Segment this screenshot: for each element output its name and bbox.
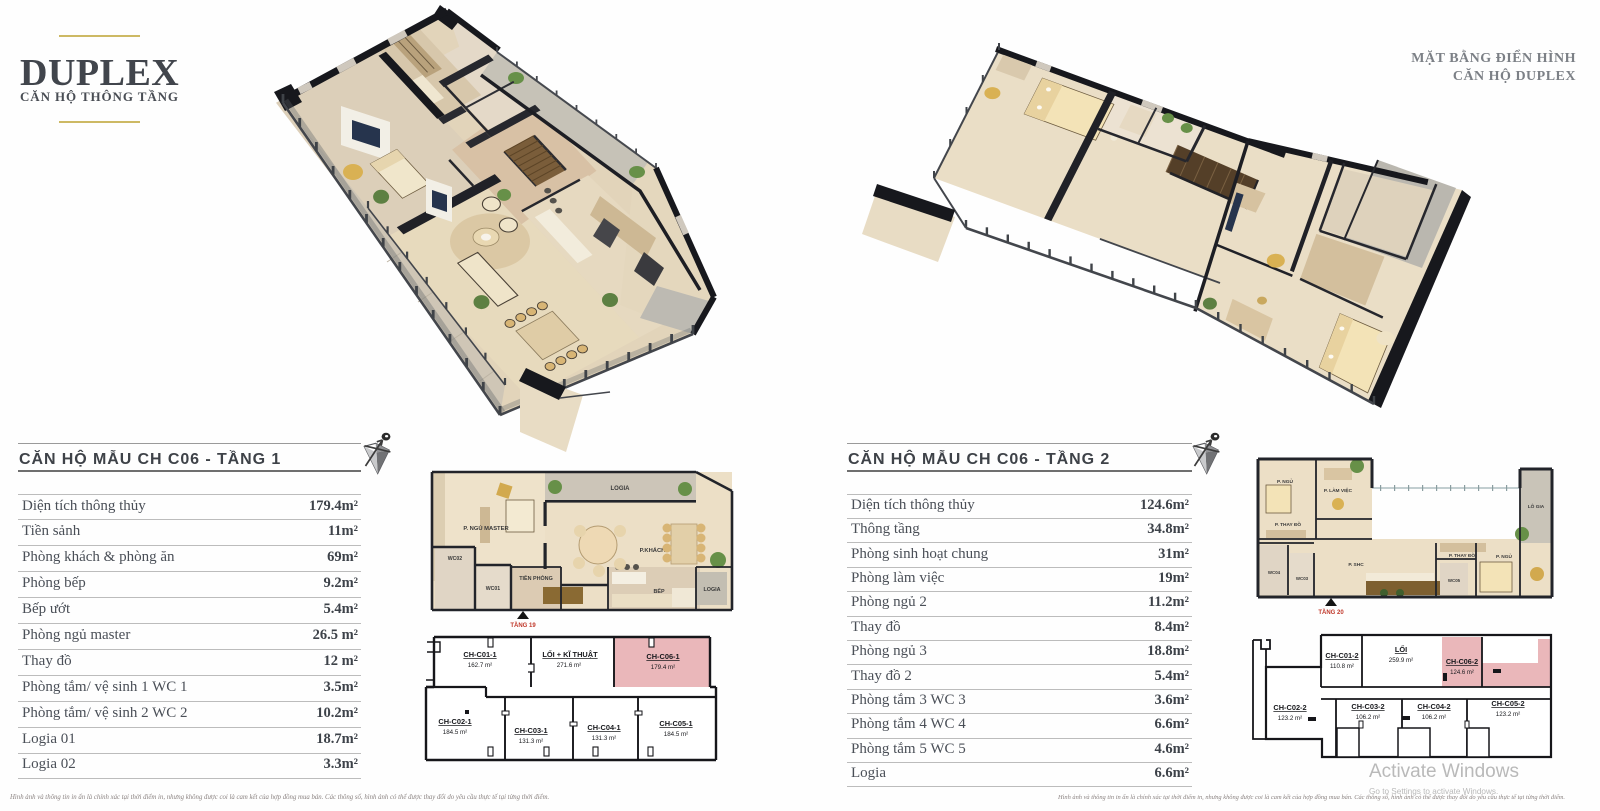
svg-text:TẦNG 20: TẦNG 20 (1318, 609, 1344, 616)
svg-text:131.3 m²: 131.3 m² (592, 735, 616, 742)
svg-text:123.2 m²: 123.2 m² (1496, 711, 1520, 718)
svg-text:WC05: WC05 (1448, 578, 1461, 583)
svg-text:106.2 m²: 106.2 m² (1422, 714, 1446, 721)
svg-text:CH-C03-1: CH-C03-1 (514, 726, 547, 735)
svg-text:CH-C02-1: CH-C02-1 (438, 717, 471, 726)
svg-text:LOGIA: LOGIA (611, 486, 631, 492)
svg-text:CH-C05-1: CH-C05-1 (659, 719, 692, 728)
svg-text:LỐI: LỐI (1395, 644, 1407, 654)
svg-text:P. NGỦ: P. NGỦ (1277, 478, 1293, 485)
svg-text:BẾP: BẾP (653, 588, 664, 595)
svg-text:WC02: WC02 (448, 556, 463, 562)
svg-text:CH-C04-1: CH-C04-1 (587, 723, 620, 732)
svg-text:162.7 m²: 162.7 m² (468, 662, 492, 669)
svg-text:CH-C03-2: CH-C03-2 (1351, 702, 1384, 711)
svg-text:WC03: WC03 (1296, 576, 1309, 581)
svg-text:124.6 m²: 124.6 m² (1450, 670, 1474, 676)
svg-text:123.2 m²: 123.2 m² (1278, 715, 1302, 722)
svg-text:P. NGỦ: P. NGỦ (1496, 553, 1512, 560)
svg-text:184.5 m²: 184.5 m² (443, 729, 467, 736)
svg-text:179.4 m²: 179.4 m² (651, 664, 675, 671)
svg-text:LỐI + KĨ THUẬT: LỐI + KĨ THUẬT (542, 649, 598, 659)
svg-text:CH-C01-1: CH-C01-1 (463, 650, 496, 659)
svg-text:TẦNG 19: TẦNG 19 (510, 622, 536, 629)
svg-text:184.5 m²: 184.5 m² (664, 731, 688, 738)
svg-text:259.9 m²: 259.9 m² (1389, 657, 1413, 664)
svg-text:WC01: WC01 (486, 586, 501, 592)
svg-text:P. NGỦ MASTER: P. NGỦ MASTER (463, 525, 509, 532)
svg-text:CH-C05-2: CH-C05-2 (1491, 699, 1524, 708)
svg-text:110.8 m²: 110.8 m² (1330, 663, 1354, 670)
svg-text:P. SHC: P. SHC (1348, 562, 1364, 568)
svg-text:P. THAY ĐỒ: P. THAY ĐỒ (1449, 552, 1476, 559)
svg-text:131.3 m²: 131.3 m² (519, 738, 543, 745)
svg-text:CH-C06-2: CH-C06-2 (1446, 657, 1478, 666)
svg-text:106.2 m²: 106.2 m² (1356, 714, 1380, 721)
svg-text:CH-C04-2: CH-C04-2 (1417, 702, 1450, 711)
svg-text:WC04: WC04 (1268, 570, 1281, 575)
svg-text:CH-C02-2: CH-C02-2 (1273, 703, 1306, 712)
svg-text:TIỀN PHÒNG: TIỀN PHÒNG (519, 574, 553, 582)
svg-text:CH-C06-1: CH-C06-1 (646, 652, 679, 661)
svg-text:P. THAY ĐỒ: P. THAY ĐỒ (1275, 521, 1302, 528)
svg-text:CH-C01-2: CH-C01-2 (1325, 651, 1358, 660)
svg-text:271.6 m²: 271.6 m² (557, 662, 581, 669)
svg-text:LOGIA: LOGIA (703, 587, 720, 593)
